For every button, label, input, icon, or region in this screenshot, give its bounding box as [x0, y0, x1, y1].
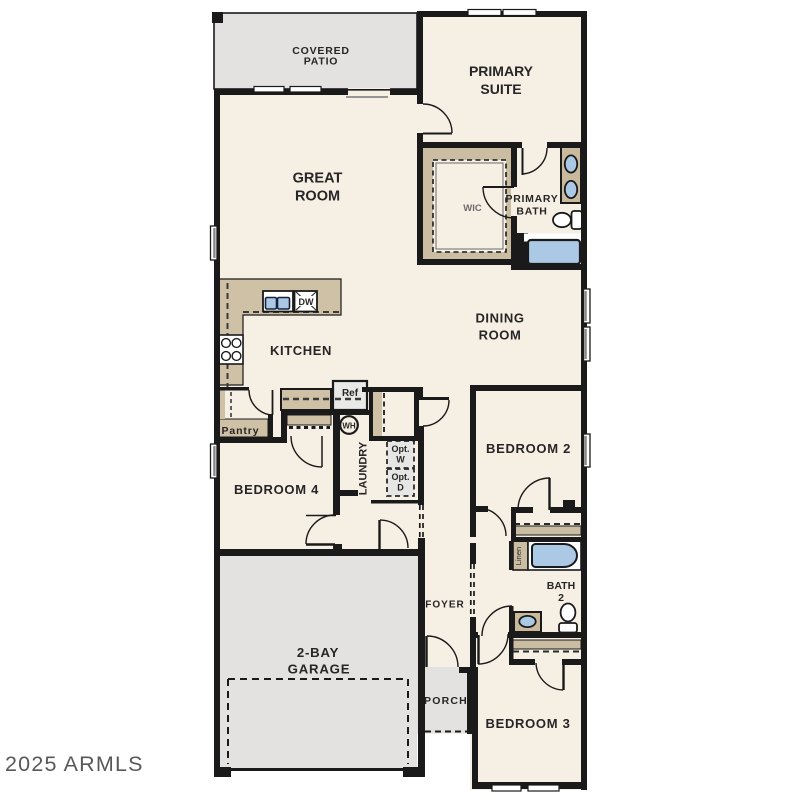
svg-text:BEDROOM 3: BEDROOM 3	[485, 716, 570, 731]
svg-text:PATIO: PATIO	[304, 56, 339, 68]
svg-text:BATH: BATH	[516, 206, 547, 218]
svg-text:Opt.: Opt.	[392, 472, 410, 482]
svg-text:ROOM: ROOM	[479, 328, 522, 343]
svg-text:Opt.: Opt.	[392, 444, 410, 454]
svg-text:2: 2	[558, 592, 564, 604]
svg-text:Pantry: Pantry	[221, 425, 259, 437]
svg-text:WH: WH	[342, 422, 356, 431]
svg-text:2-BAY: 2-BAY	[297, 645, 339, 660]
svg-text:PORCH: PORCH	[424, 695, 468, 707]
svg-text:2025 ARMLS: 2025 ARMLS	[5, 752, 144, 776]
svg-text:LAUNDRY: LAUNDRY	[358, 441, 370, 495]
svg-text:WIC: WIC	[463, 203, 482, 214]
svg-text:D: D	[397, 483, 404, 493]
svg-text:BEDROOM 2: BEDROOM 2	[486, 441, 571, 456]
svg-text:GREAT: GREAT	[293, 171, 343, 187]
svg-text:PRIMARY: PRIMARY	[469, 63, 534, 79]
svg-text:KITCHEN: KITCHEN	[270, 343, 332, 358]
svg-text:GARAGE: GARAGE	[288, 662, 351, 677]
svg-text:DINING: DINING	[475, 311, 524, 326]
svg-text:ROOM: ROOM	[295, 189, 340, 205]
svg-text:Ref: Ref	[342, 388, 359, 399]
svg-text:PRIMARY: PRIMARY	[506, 193, 559, 205]
svg-text:SUITE: SUITE	[480, 81, 521, 97]
svg-text:BATH: BATH	[547, 580, 575, 592]
svg-text:FOYER: FOYER	[425, 600, 464, 611]
svg-text:W: W	[396, 455, 405, 465]
svg-text:BEDROOM 4: BEDROOM 4	[234, 482, 319, 497]
svg-text:DW: DW	[299, 297, 314, 307]
svg-text:Linen: Linen	[514, 547, 523, 565]
